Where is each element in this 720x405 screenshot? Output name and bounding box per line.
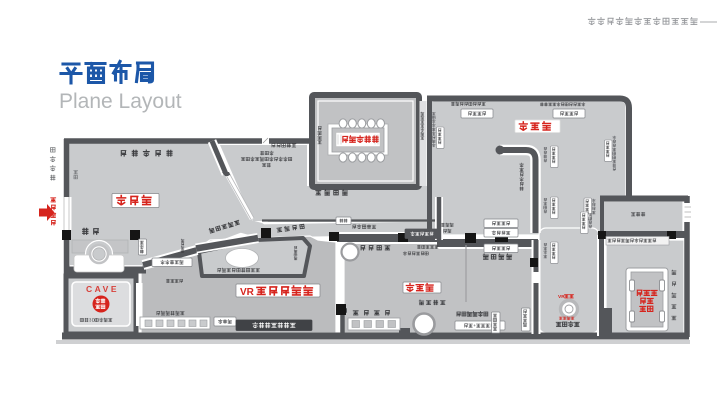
- svg-text:CAVE: CAVE: [86, 284, 119, 294]
- svg-text:Plane Layout: Plane Layout: [59, 90, 182, 113]
- svg-text:VR: VR: [240, 287, 255, 298]
- svg-text:+: +: [473, 323, 476, 328]
- svg-text:D: D: [92, 317, 95, 322]
